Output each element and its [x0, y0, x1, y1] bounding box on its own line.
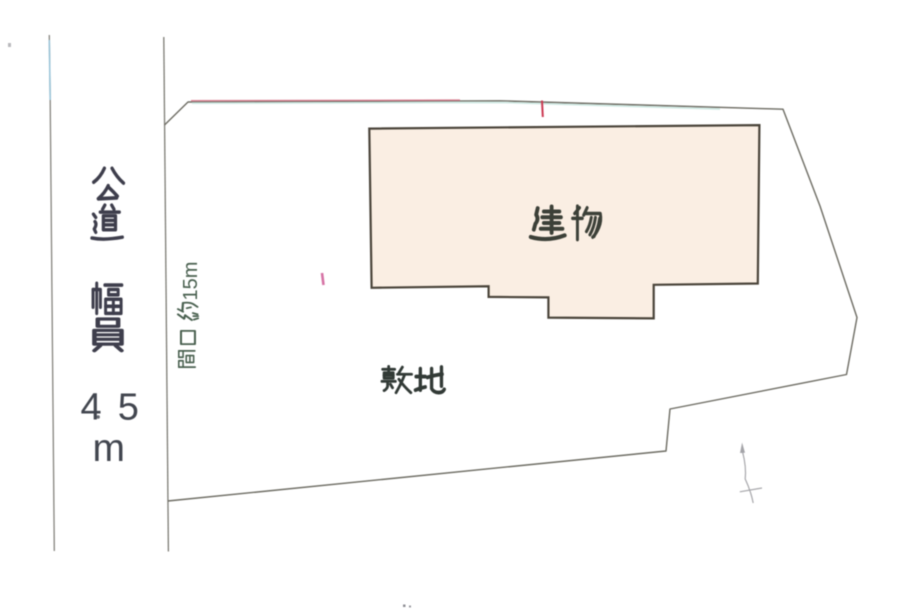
svg-text:m: m	[93, 427, 126, 470]
svg-text:15m: 15m	[180, 262, 202, 301]
svg-text:4: 4	[81, 387, 102, 429]
svg-text:5: 5	[118, 387, 139, 429]
